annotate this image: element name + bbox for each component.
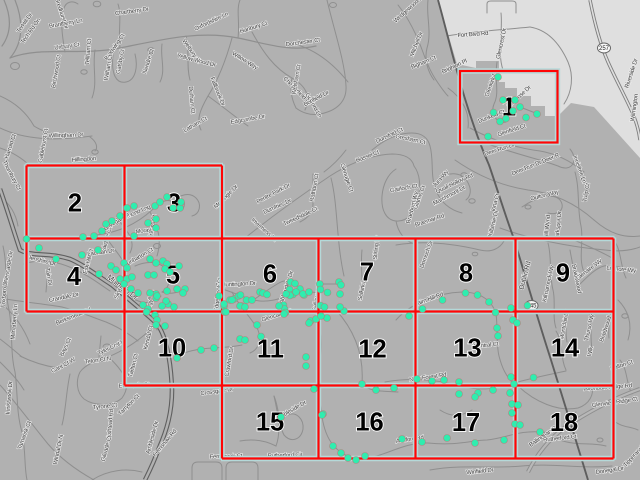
svg-text:18: 18 [550, 409, 578, 437]
svg-text:Willingham Dr: Willingham Dr [48, 132, 83, 139]
svg-text:17: 17 [452, 409, 480, 437]
svg-text:2: 2 [68, 190, 82, 218]
svg-text:8: 8 [459, 260, 473, 288]
svg-text:10: 10 [158, 335, 186, 363]
svg-text:257: 257 [599, 46, 610, 52]
svg-text:9: 9 [556, 260, 570, 288]
svg-text:12: 12 [358, 336, 386, 364]
svg-text:13: 13 [453, 335, 481, 363]
svg-text:6: 6 [263, 261, 277, 289]
svg-text:4: 4 [67, 263, 82, 291]
svg-text:16: 16 [355, 409, 383, 437]
svg-text:15: 15 [256, 409, 284, 437]
svg-text:7: 7 [360, 259, 374, 287]
svg-text:14: 14 [551, 335, 580, 363]
